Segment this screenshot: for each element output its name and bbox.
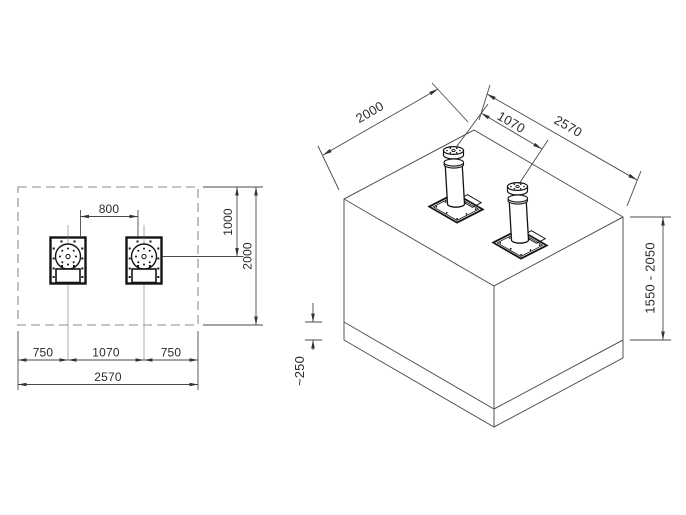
dim-label-iso-spacing: 1070 xyxy=(495,108,528,136)
dimension-surface-layer: ~250 xyxy=(292,303,322,386)
dim-label-total-depth: 2000 xyxy=(241,242,255,270)
dim-label-total-width: 2570 xyxy=(94,370,122,384)
bollard-flange-plan-2 xyxy=(127,238,162,284)
dim-label-clearance: 800 xyxy=(99,202,120,216)
dimension-clearance-800: 800 xyxy=(81,202,139,236)
dim-label-spacing-1070: 1070 xyxy=(92,346,120,360)
dim-label-surface-layer: ~250 xyxy=(292,356,307,386)
iso-view: 2000 2570 1070 1550 - 2050 xyxy=(292,83,671,427)
plan-view: 800 750 1070 750 2570 xyxy=(18,187,263,390)
dim-label-center-offset: 1000 xyxy=(221,208,235,236)
dimension-total-width: 2570 xyxy=(18,370,198,386)
dim-label-right-750: 750 xyxy=(161,346,182,360)
foundation-block xyxy=(344,130,623,427)
technical-drawing-page: 800 750 1070 750 2570 xyxy=(0,0,686,515)
dim-label-left-750: 750 xyxy=(33,346,54,360)
dimension-install-height: 1550 - 2050 xyxy=(630,217,671,340)
dim-label-iso-width: 2570 xyxy=(552,112,585,140)
bollard-flange-plan-1 xyxy=(51,238,86,284)
dim-label-install-height: 1550 - 2050 xyxy=(643,242,658,314)
dimension-right-side: 1000 2000 xyxy=(162,187,263,325)
drawing-canvas: 800 750 1070 750 2570 xyxy=(0,0,686,515)
